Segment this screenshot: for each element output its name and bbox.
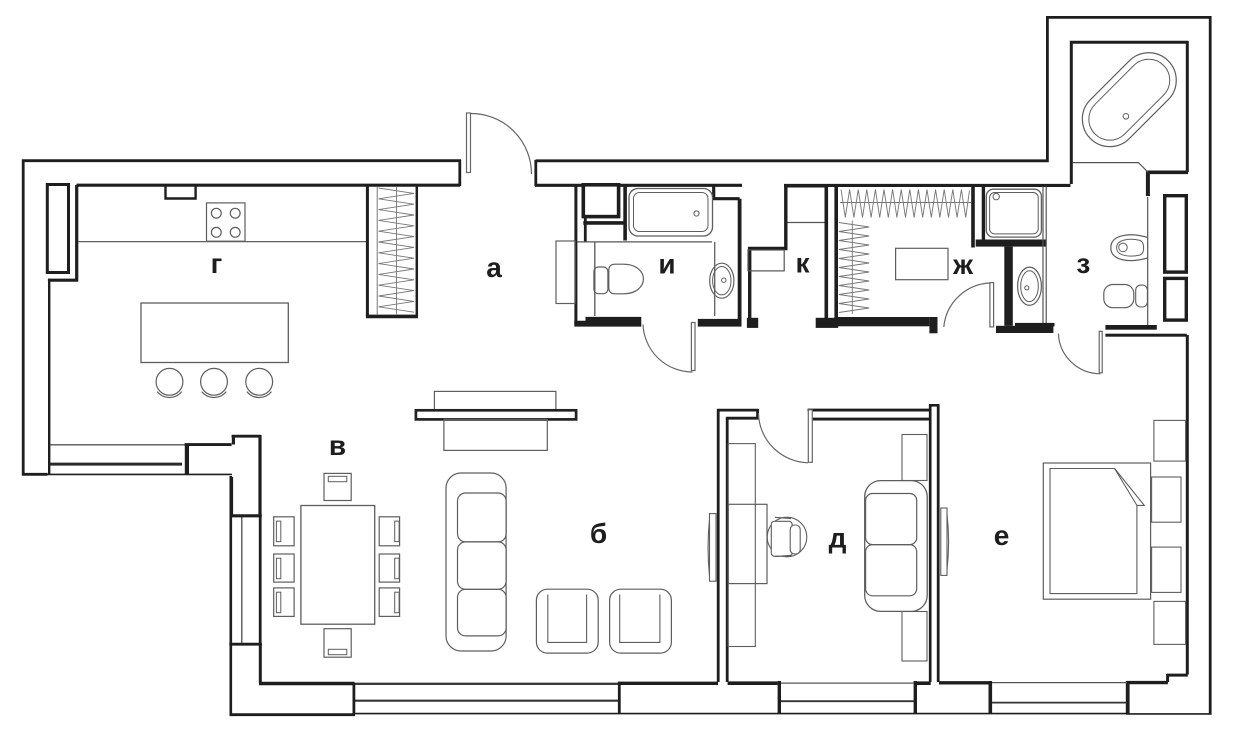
svg-text:г: г [211,248,223,279]
svg-text:в: в [329,430,346,461]
svg-text:ж: ж [952,249,974,280]
svg-text:з: з [1076,248,1090,279]
svg-text:б: б [590,518,607,549]
svg-text:и: и [658,249,675,280]
svg-text:д: д [829,523,847,554]
svg-text:а: а [486,252,502,283]
svg-text:е: е [994,520,1010,551]
svg-text:к: к [795,248,810,279]
